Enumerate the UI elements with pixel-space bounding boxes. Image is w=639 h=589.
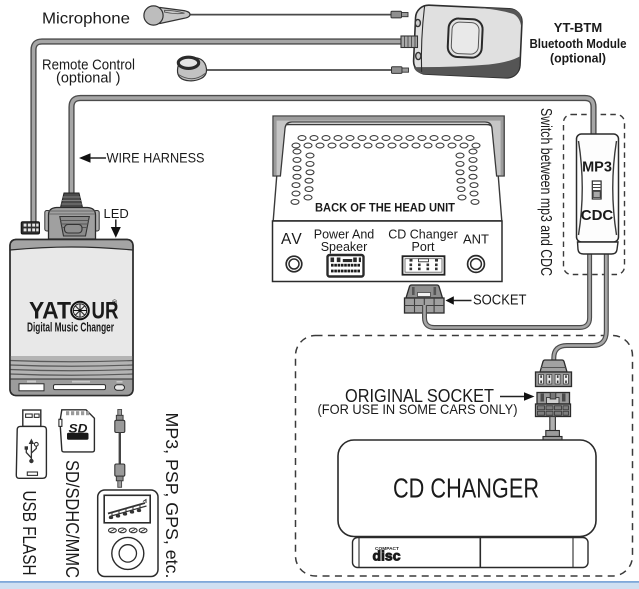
svg-text:®: ® [112, 299, 118, 307]
svg-text:AV: AV [281, 231, 303, 248]
svg-text:Microphone: Microphone [42, 11, 130, 28]
svg-text:(optional ): (optional ) [56, 71, 120, 87]
svg-text:(optional): (optional) [550, 51, 606, 66]
svg-text:CD CHANGER: CD CHANGER [393, 473, 539, 504]
svg-text:MP3: MP3 [582, 160, 612, 176]
svg-text:ANT: ANT [463, 232, 489, 247]
svg-text:SOCKET: SOCKET [473, 292, 527, 309]
svg-text:YT-BTM: YT-BTM [554, 20, 602, 35]
svg-text:Speaker: Speaker [321, 240, 368, 254]
svg-text:Bluetooth Module: Bluetooth Module [530, 36, 627, 51]
svg-text:SD/SDHC/MMC: SD/SDHC/MMC [62, 460, 82, 578]
svg-text:BACK OF THE HEAD UNIT: BACK OF THE HEAD UNIT [315, 201, 456, 215]
svg-text:disc: disc [373, 549, 402, 564]
svg-text:USB FLASH: USB FLASH [19, 491, 39, 576]
svg-text:HC: HC [73, 434, 83, 441]
svg-text:Digital Music Changer: Digital Music Changer [27, 320, 114, 335]
svg-text:Switch between mp3 and CDC: Switch between mp3 and CDC [537, 108, 554, 276]
svg-text:MP3, PSP, GPS, etc.: MP3, PSP, GPS, etc. [162, 413, 182, 579]
svg-text:WIRE HARNESS: WIRE HARNESS [107, 149, 205, 165]
svg-text:LED: LED [104, 206, 129, 221]
svg-text:(FOR USE IN SOME CARS ONLY): (FOR USE IN SOME CARS ONLY) [318, 401, 518, 417]
svg-text:Port: Port [412, 240, 435, 254]
svg-text:CDC: CDC [581, 207, 614, 224]
